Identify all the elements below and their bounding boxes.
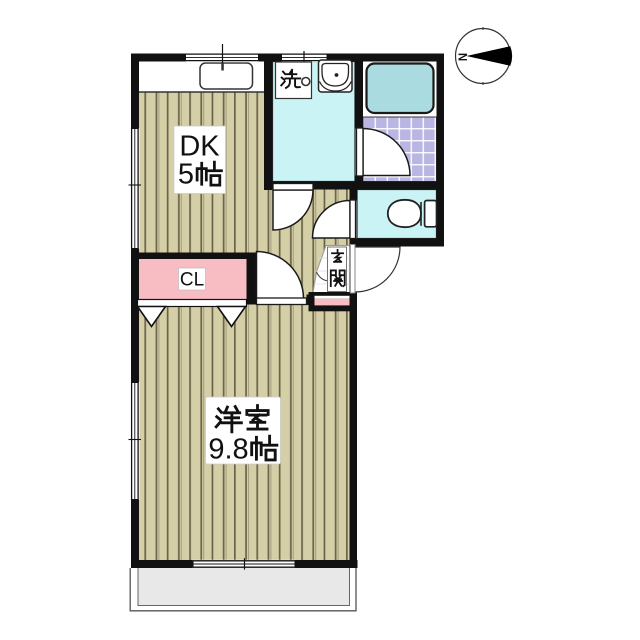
- svg-text:5: 5: [178, 159, 194, 191]
- svg-text:CL: CL: [180, 270, 204, 291]
- svg-text:9.8: 9.8: [208, 434, 248, 466]
- svg-text:N: N: [456, 53, 468, 61]
